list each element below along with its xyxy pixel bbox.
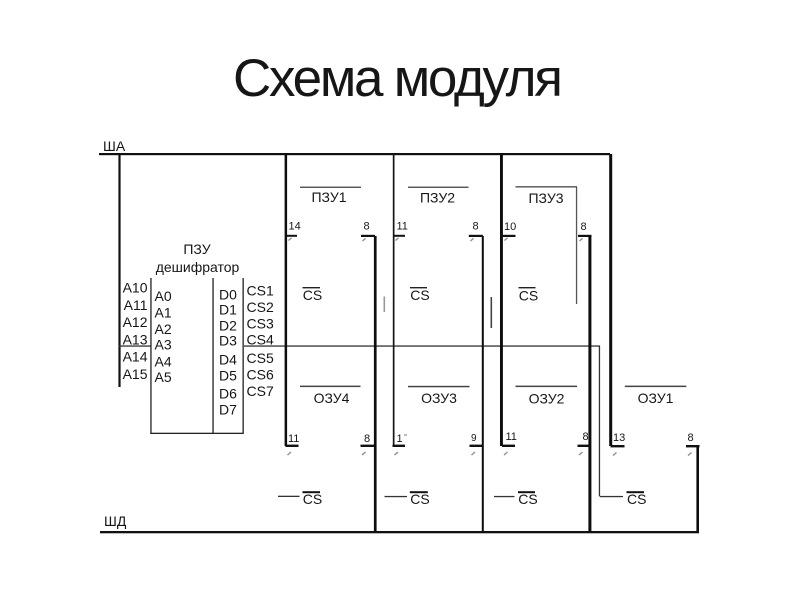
svg-text:D4: D4	[219, 352, 237, 368]
svg-text:ША: ША	[103, 138, 126, 154]
svg-text:CS7: CS7	[247, 383, 274, 399]
svg-text:ПЗУ1: ПЗУ1	[311, 189, 346, 205]
svg-text:CS: CS	[410, 287, 429, 303]
svg-text:A12: A12	[123, 314, 148, 330]
svg-text:8: 8	[688, 432, 694, 444]
svg-text:A5: A5	[155, 369, 172, 385]
svg-text:D7: D7	[219, 402, 237, 418]
svg-text:ПЗУ3: ПЗУ3	[528, 190, 563, 206]
svg-text:1: 1	[397, 433, 403, 445]
svg-text:8: 8	[581, 221, 587, 233]
svg-text:11: 11	[397, 221, 408, 233]
svg-text:Схема модуля: Схема модуля	[233, 49, 563, 108]
svg-text:ОЗУ1: ОЗУ1	[638, 390, 674, 406]
svg-text:дешифратор: дешифратор	[156, 259, 240, 275]
svg-text:CS: CS	[410, 491, 429, 507]
svg-text:11: 11	[288, 433, 299, 445]
svg-text:A0: A0	[155, 288, 172, 304]
svg-text:A4: A4	[155, 354, 172, 370]
svg-text:ОЗУ3: ОЗУ3	[421, 390, 457, 406]
svg-text:D3: D3	[219, 333, 237, 349]
svg-text:CS: CS	[518, 491, 537, 507]
svg-text:ОЗУ4: ОЗУ4	[314, 390, 350, 406]
svg-text:D5: D5	[219, 368, 237, 384]
svg-text:CS3: CS3	[247, 316, 274, 332]
svg-text:A10: A10	[123, 280, 148, 296]
svg-text:CS1: CS1	[247, 283, 274, 299]
svg-text:ПЗУ: ПЗУ	[183, 241, 210, 257]
svg-text:A2: A2	[155, 321, 172, 337]
svg-text:CS: CS	[303, 287, 322, 303]
svg-text:10: 10	[504, 221, 516, 233]
svg-text:A11: A11	[124, 297, 148, 313]
svg-text:CS: CS	[627, 491, 646, 507]
svg-text:D1: D1	[219, 302, 237, 318]
svg-text:A15: A15	[123, 366, 148, 382]
svg-text:8: 8	[473, 221, 479, 233]
svg-text:8: 8	[583, 431, 589, 443]
svg-text:A13: A13	[123, 331, 148, 347]
svg-text:A14: A14	[123, 349, 148, 365]
svg-text:A3: A3	[155, 337, 172, 353]
svg-text:8: 8	[364, 433, 370, 445]
svg-text:ШД: ШД	[104, 513, 127, 529]
svg-text:14: 14	[289, 221, 301, 233]
svg-text:8: 8	[364, 221, 370, 233]
svg-text:CS5: CS5	[247, 350, 274, 366]
svg-text:D6: D6	[219, 386, 237, 402]
svg-text:9: 9	[471, 433, 477, 444]
svg-text:CS4: CS4	[247, 332, 274, 348]
svg-text:D2: D2	[219, 318, 237, 334]
svg-text:A1: A1	[155, 305, 172, 321]
svg-text:CS2: CS2	[247, 299, 274, 315]
svg-text:ОЗУ2: ОЗУ2	[529, 391, 565, 407]
svg-text:11: 11	[506, 431, 517, 443]
svg-text:D0: D0	[219, 287, 237, 303]
svg-text:CS6: CS6	[247, 367, 274, 383]
svg-text:CS: CS	[303, 491, 322, 507]
svg-text:13: 13	[613, 432, 625, 444]
svg-text:ПЗУ2: ПЗУ2	[420, 190, 455, 206]
svg-text:CS: CS	[519, 288, 538, 304]
